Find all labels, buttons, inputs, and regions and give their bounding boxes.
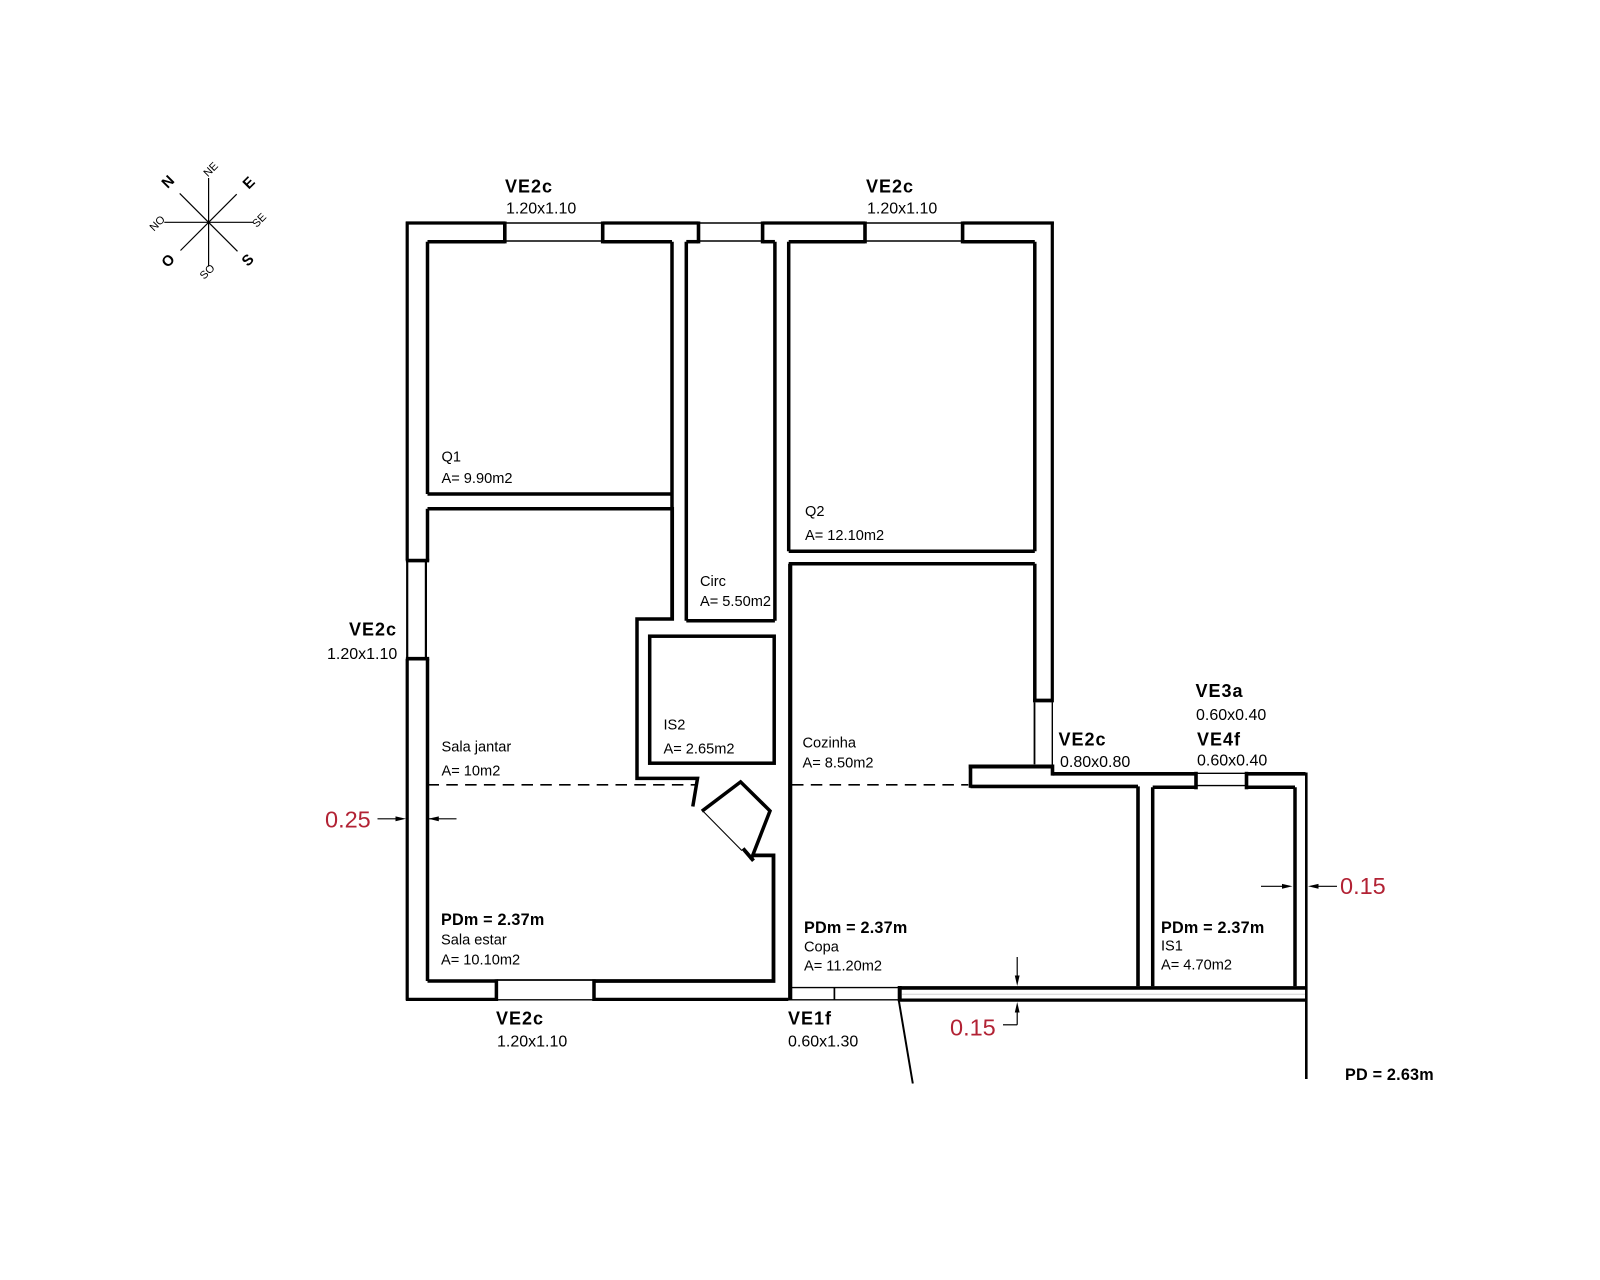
svg-text:0.25: 0.25 [325, 807, 371, 833]
svg-text:A= 2.65m2: A= 2.65m2 [664, 742, 735, 758]
svg-text:VE1f: VE1f [788, 1009, 832, 1029]
svg-text:PDm = 2.37m: PDm = 2.37m [441, 911, 544, 929]
svg-text:0.60x1.30: 0.60x1.30 [788, 1034, 858, 1051]
svg-text:Cozinha: Cozinha [803, 736, 857, 752]
svg-text:1.20x1.10: 1.20x1.10 [497, 1034, 567, 1051]
svg-text:IS1: IS1 [1161, 939, 1183, 955]
svg-text:IS2: IS2 [664, 718, 686, 734]
svg-text:VE2c: VE2c [496, 1009, 544, 1029]
svg-text:A= 10m2: A= 10m2 [442, 764, 501, 780]
svg-text:PD = 2.63m: PD = 2.63m [1345, 1066, 1434, 1084]
svg-text:1.20x1.10: 1.20x1.10 [327, 646, 397, 663]
svg-text:A= 9.90m2: A= 9.90m2 [442, 471, 513, 487]
svg-text:A= 4.70m2: A= 4.70m2 [1161, 958, 1232, 974]
svg-text:1.20x1.10: 1.20x1.10 [506, 201, 576, 218]
svg-text:A= 10.10m2: A= 10.10m2 [441, 953, 520, 969]
svg-text:VE2c: VE2c [505, 177, 553, 197]
svg-text:0.15: 0.15 [1340, 873, 1386, 899]
svg-text:0.80x0.80: 0.80x0.80 [1060, 754, 1130, 771]
svg-text:Q2: Q2 [805, 504, 824, 520]
svg-text:PDm = 2.37m: PDm = 2.37m [1161, 919, 1264, 937]
svg-text:A= 12.10m2: A= 12.10m2 [805, 528, 884, 544]
svg-text:Sala jantar: Sala jantar [442, 740, 512, 756]
svg-text:A= 5.50m2: A= 5.50m2 [700, 594, 771, 610]
svg-text:VE2c: VE2c [866, 177, 914, 197]
svg-text:A= 11.20m2: A= 11.20m2 [804, 959, 882, 975]
svg-text:Q1: Q1 [442, 450, 461, 466]
svg-text:0.15: 0.15 [950, 1015, 996, 1041]
svg-text:0.60x0.40: 0.60x0.40 [1197, 753, 1267, 770]
svg-text:1.20x1.10: 1.20x1.10 [867, 201, 937, 218]
svg-text:VE3a: VE3a [1196, 681, 1244, 701]
svg-text:PDm = 2.37m: PDm = 2.37m [804, 919, 907, 937]
svg-text:Copa: Copa [804, 940, 840, 956]
svg-text:A= 8.50m2: A= 8.50m2 [803, 756, 874, 772]
svg-text:VE2c: VE2c [349, 620, 397, 640]
svg-text:VE4f: VE4f [1197, 730, 1241, 750]
svg-text:Circ: Circ [700, 574, 726, 590]
svg-text:0.60x0.40: 0.60x0.40 [1196, 707, 1266, 724]
svg-text:VE2c: VE2c [1059, 730, 1107, 750]
svg-text:Sala estar: Sala estar [441, 933, 507, 949]
